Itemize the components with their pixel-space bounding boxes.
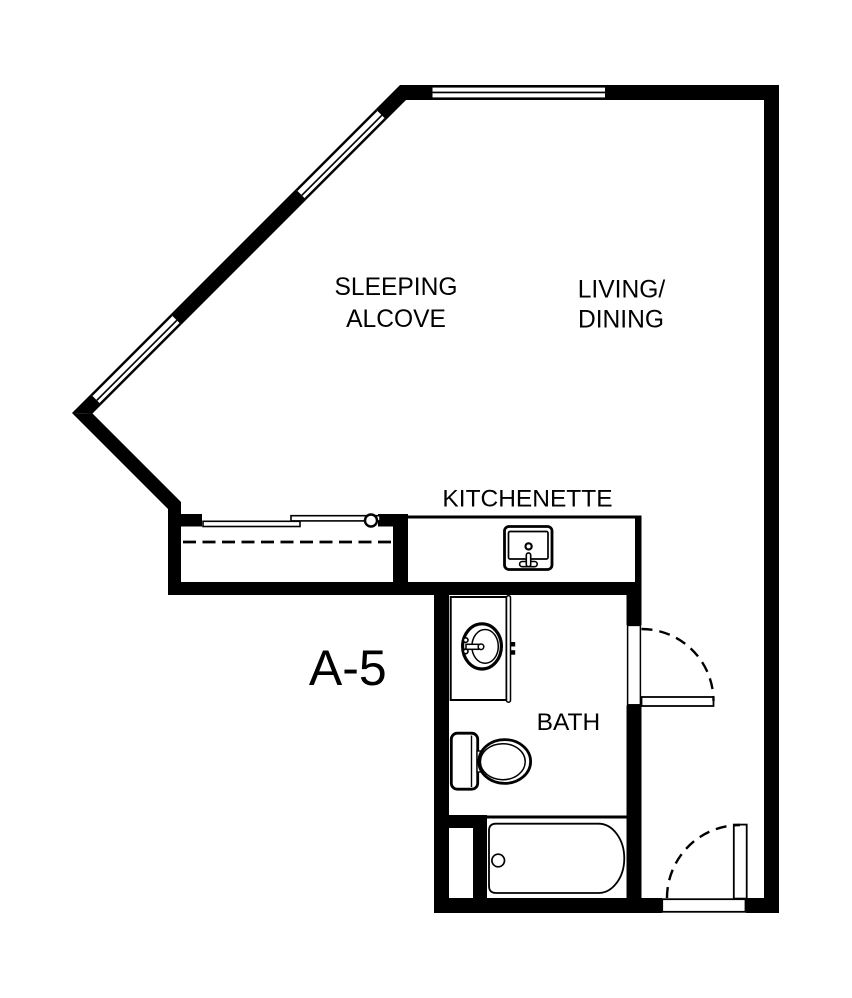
svg-text:BATH: BATH xyxy=(537,709,601,736)
svg-text:A-5: A-5 xyxy=(309,640,387,696)
svg-text:KITCHENETTE: KITCHENETTE xyxy=(442,486,612,513)
svg-text:SLEEPING: SLEEPING xyxy=(334,274,457,301)
svg-text:LIVING/: LIVING/ xyxy=(578,277,666,304)
svg-text:ALCOVE: ALCOVE xyxy=(346,306,446,333)
svg-text:DINING: DINING xyxy=(578,307,664,334)
